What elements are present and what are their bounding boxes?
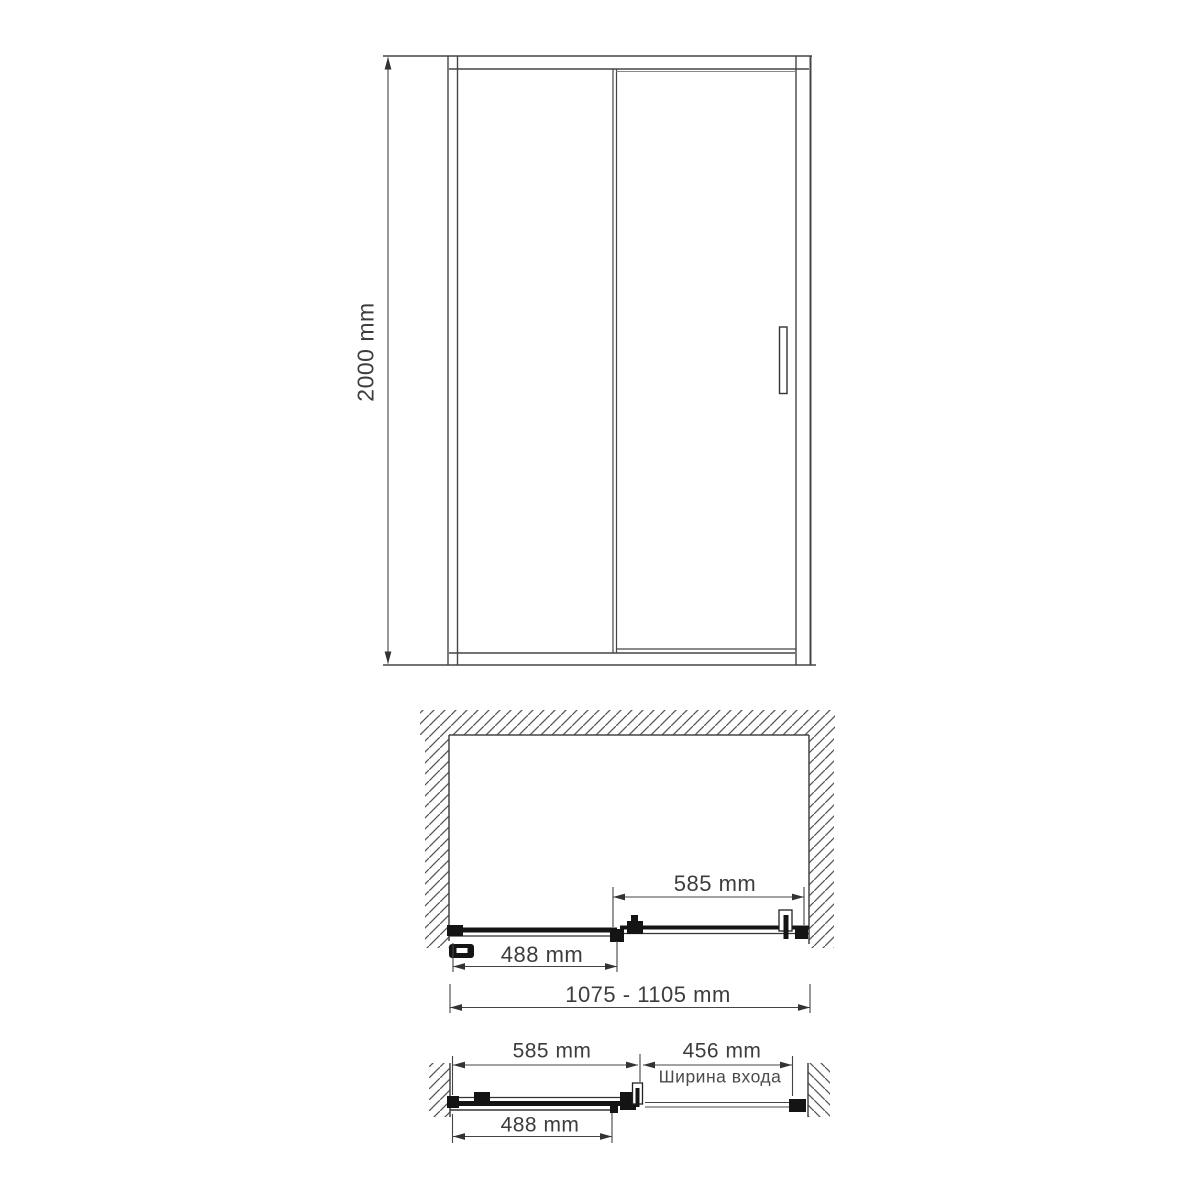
wall-bracket-right [795,926,808,939]
wall-hatch-right [809,735,834,948]
wall-bracket-left [447,925,463,936]
entry-width-caption-label: Ширина входа [656,1068,785,1086]
roller-bracket-b [627,921,643,934]
front-height-dim-label: 2000 mm [355,299,378,404]
wall-bracket-left-open [447,1096,459,1108]
open-fixed-panel-dim-label: 488 mm [498,1115,583,1136]
drawing-linework [0,0,1200,1200]
open-sliding-panel-dim-label: 585 mm [510,1041,595,1062]
wall-hatch-left-open [429,1063,450,1117]
closed-sliding-panel-dim-label: 585 mm [671,873,759,895]
wall-hatch-right-open [808,1063,830,1117]
fixed-panel-endcap [610,1105,618,1113]
wall-bracket-right-open [789,1099,806,1112]
shower-door-technical-drawing: 2000 mm 585 mm 488 mm 1075 - 1105 mm 585… [0,0,1200,1200]
closed-fixed-panel-dim-label: 488 mm [498,944,586,966]
overall-width-dim-label: 1075 - 1105 mm [562,984,734,1006]
entry-width-dim-label: 456 mm [680,1041,765,1062]
door-handle-front [780,327,788,394]
roller-a-open [474,1092,490,1104]
roller-bracket-a [610,929,624,942]
wall-hatch-top [420,710,835,735]
wall-hatch-left [425,735,449,948]
front-elevation-view [383,56,816,665]
plan-view-closed [420,710,835,1013]
